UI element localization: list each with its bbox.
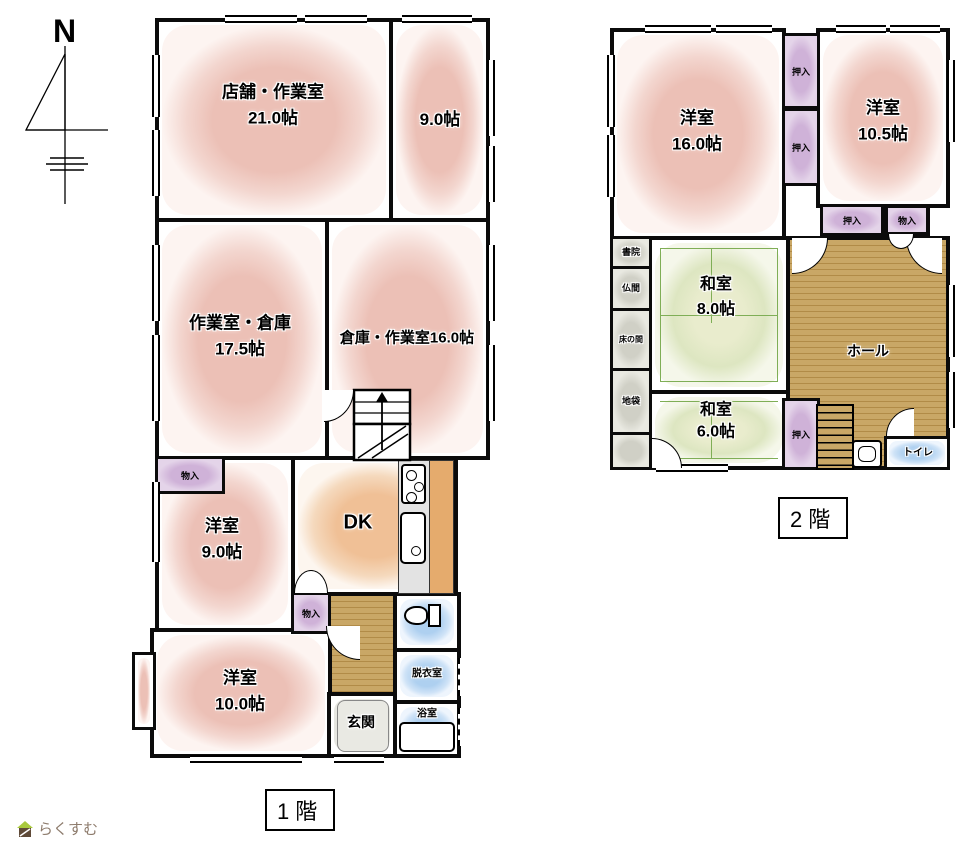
- room-toilet-1f: [393, 592, 461, 652]
- closet-oshiire-2f-b: 押入: [782, 108, 820, 186]
- closet-oshiire-2f-c: 押入: [820, 204, 884, 236]
- label-west10: 洋室10.0帖: [215, 666, 265, 719]
- window: [947, 372, 955, 428]
- label-9jo: 9.0帖: [420, 107, 461, 133]
- closet-monoire-2f: 物入: [884, 204, 930, 236]
- closet-label: 押入: [843, 214, 861, 227]
- window: [645, 25, 711, 33]
- label-shop: 店舗・作業室21.0帖: [222, 80, 324, 133]
- cell-shoin: 書院: [610, 236, 652, 270]
- window: [836, 25, 886, 33]
- toilet-tank-icon: [428, 604, 441, 627]
- stairs-1f-icon: [352, 388, 414, 462]
- window: [152, 335, 160, 421]
- window: [947, 285, 955, 357]
- north-arrow-icon: N: [20, 8, 115, 213]
- label-hall: ホール: [847, 341, 889, 363]
- label-west9: 洋室9.0帖: [202, 514, 243, 567]
- label-work175: 作業室・倉庫17.5帖: [189, 311, 291, 364]
- floor1-tag: 1階: [265, 789, 335, 831]
- closet-label: 押入: [792, 428, 810, 441]
- stairs-2f-icon: [816, 404, 854, 470]
- cell-jibukuro: 地袋: [610, 368, 652, 436]
- floorplan-canvas: N 物入 物入: [0, 0, 973, 847]
- closet-oshiire-2f-d: 押入: [782, 398, 820, 470]
- label-dk: DK: [344, 508, 373, 539]
- window: [947, 60, 955, 142]
- closet-oshiire-2f-a: 押入: [782, 33, 820, 109]
- window: [152, 130, 160, 196]
- label-washitsu6: 和室6.0帖: [697, 400, 735, 445]
- cell-label: 地袋: [622, 395, 640, 409]
- label-west16: 洋室16.0帖: [672, 106, 722, 159]
- window: [458, 658, 464, 696]
- closet-label: 押入: [792, 65, 810, 78]
- cell-butsuma: 仏間: [610, 266, 652, 312]
- window: [190, 755, 302, 763]
- stove-icon: [401, 464, 426, 504]
- washbasin-icon: [852, 440, 882, 468]
- closet-monoire-1f-a: 物入: [155, 456, 225, 494]
- window: [487, 146, 495, 202]
- window: [487, 245, 495, 321]
- bathtub-icon: [399, 722, 455, 752]
- compass-n-glyph: N: [53, 13, 76, 49]
- label-west105: 洋室10.5帖: [858, 96, 908, 149]
- cell-label: 書院: [622, 246, 640, 260]
- window: [152, 245, 160, 321]
- window: [402, 15, 472, 23]
- label-toilet-2f: トイレ: [903, 445, 933, 461]
- window: [152, 482, 160, 562]
- closet-label: 物入: [898, 214, 916, 227]
- window: [890, 25, 940, 33]
- rakusumu-logo: らくすむ: [16, 818, 98, 839]
- floor2-tag: 2階: [778, 497, 848, 539]
- bay-window: [132, 652, 156, 730]
- label-storage16: 倉庫・作業室16.0帖: [340, 326, 474, 349]
- window: [225, 15, 297, 23]
- cell-storage: [610, 432, 652, 470]
- window: [458, 708, 464, 746]
- cell-label: 仏間: [622, 282, 640, 296]
- closet-label: 物入: [181, 469, 199, 482]
- closet-monoire-1f-b: 物入: [291, 592, 331, 634]
- sink-icon: [400, 512, 426, 564]
- label-bath: 浴室: [417, 706, 437, 722]
- label-datsui: 脱衣室: [412, 666, 442, 682]
- toilet-bowl-icon: [404, 606, 428, 625]
- label-washitsu8: 和室8.0帖: [697, 273, 735, 323]
- closet-label: 物入: [302, 607, 320, 620]
- window: [152, 55, 160, 117]
- closet-label: 押入: [792, 141, 810, 154]
- label-genkan: 玄関: [347, 712, 375, 734]
- window: [607, 55, 615, 127]
- house-icon: [16, 820, 34, 838]
- window: [487, 345, 495, 421]
- logo-text: らくすむ: [38, 818, 98, 839]
- window: [607, 135, 615, 197]
- window: [716, 25, 772, 33]
- kitchen-cabinet: [428, 460, 454, 594]
- window: [487, 60, 495, 136]
- cell-tokonoma: 床の間: [610, 308, 652, 372]
- window: [305, 15, 367, 23]
- cell-label: 床の間: [619, 334, 643, 346]
- entrance-door: [334, 755, 384, 763]
